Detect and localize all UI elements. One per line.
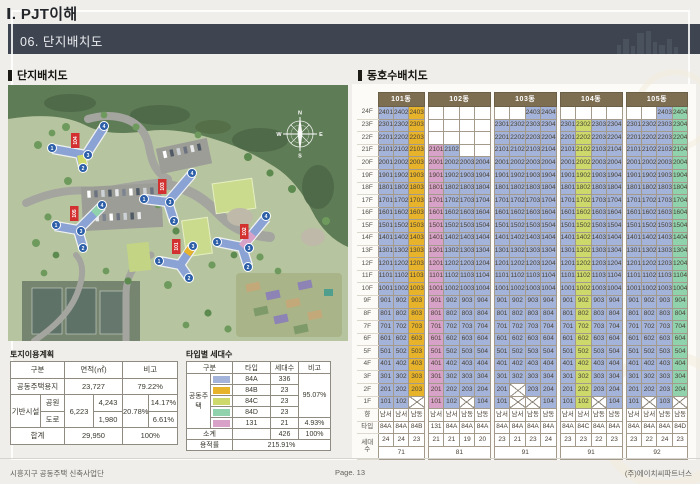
unit-cell: 2202 bbox=[642, 132, 657, 145]
col-header: 면적(㎡) bbox=[65, 362, 123, 379]
unit-cell: 704 bbox=[607, 321, 622, 334]
unit-cell: 804 bbox=[672, 308, 687, 321]
unit-layout-panel: 101동102동103동104동105동24F24012402240324032… bbox=[352, 84, 696, 460]
unit-cell: 401 bbox=[626, 358, 641, 371]
unit-cell: 1202 bbox=[444, 258, 459, 271]
type-swatch bbox=[211, 407, 233, 418]
direction-cell: 남서 bbox=[494, 409, 509, 422]
unit-cell: 2203 bbox=[591, 132, 606, 145]
unit-cell: 1001 bbox=[494, 283, 509, 296]
unit-cell: 201 bbox=[626, 384, 641, 397]
unit-cell: 1003 bbox=[525, 283, 540, 296]
unit-cell: 1503 bbox=[525, 220, 540, 233]
unit-cell: 1603 bbox=[409, 207, 424, 220]
section-title: 06. 단지배치도 bbox=[20, 31, 103, 50]
unit-cell: 804 bbox=[607, 308, 622, 321]
unit-cell: 701 bbox=[494, 321, 509, 334]
unit-cell: 1402 bbox=[393, 232, 408, 245]
floor-label: 18F bbox=[357, 182, 378, 195]
footer: 시흥지구 공동주택 신축사업단 Page. 13 (주)에이치씨파트너스 bbox=[0, 468, 700, 484]
table-cell: 1,980 bbox=[94, 411, 123, 428]
section-bullet bbox=[358, 70, 362, 81]
table-cell: 100% bbox=[123, 428, 178, 445]
unit-cell: 1001 bbox=[626, 283, 641, 296]
unit-cell: 101 bbox=[494, 396, 509, 409]
unit-cell: 1701 bbox=[378, 195, 393, 208]
unit-cell: 1604 bbox=[541, 207, 556, 220]
count-cell: 23 bbox=[607, 434, 622, 447]
unit-cell: 603 bbox=[657, 333, 672, 346]
count-cell: 23 bbox=[525, 434, 540, 447]
unit-cell: 401 bbox=[560, 358, 575, 371]
building-header: 104동 bbox=[560, 93, 622, 107]
unit-cell: 2204 bbox=[672, 132, 687, 145]
unit-cell: 302 bbox=[393, 371, 408, 384]
unit-cell: 1603 bbox=[525, 207, 540, 220]
unit-cell: 1803 bbox=[591, 182, 606, 195]
unit-cell: 2202 bbox=[576, 132, 591, 145]
unit-cell: 202 bbox=[444, 384, 459, 397]
unit-cell: 1601 bbox=[378, 207, 393, 220]
footer-divider bbox=[0, 458, 700, 459]
unit-cell: 1201 bbox=[428, 258, 443, 271]
unit-cell: 1204 bbox=[607, 258, 622, 271]
unit-cell: 1401 bbox=[560, 232, 575, 245]
unit-cell: 604 bbox=[541, 333, 556, 346]
unit-cell: 1503 bbox=[459, 220, 474, 233]
unit-cell: 201 bbox=[560, 384, 575, 397]
unit-cell: 2201 bbox=[626, 132, 641, 145]
unit-cell: 1904 bbox=[672, 169, 687, 182]
unit-cell: 2302 bbox=[393, 119, 408, 132]
unit-cell: 1304 bbox=[672, 245, 687, 258]
unit-cell: 404 bbox=[475, 358, 490, 371]
unit-cell: 1002 bbox=[393, 283, 408, 296]
unit-cell: 602 bbox=[576, 333, 591, 346]
direction-cell: 남서 bbox=[444, 409, 459, 422]
unit-cell: 1903 bbox=[409, 169, 424, 182]
svg-text:1: 1 bbox=[216, 240, 219, 246]
unit-cell: 1402 bbox=[510, 232, 525, 245]
direction-cell: 남서 bbox=[510, 409, 525, 422]
count-cell: 21 bbox=[444, 434, 459, 447]
table-cell: 23,727 bbox=[65, 378, 123, 395]
page-title: Ⅰ. PJT이해 bbox=[6, 3, 77, 24]
table-cell: 4,243 bbox=[94, 395, 123, 412]
unit-cell: 203 bbox=[525, 384, 540, 397]
empty-cell bbox=[576, 107, 591, 120]
col-header: 구분 bbox=[11, 362, 65, 379]
unit-cell: 1403 bbox=[525, 232, 540, 245]
unit-cell: 201 bbox=[494, 384, 509, 397]
unit-cell: 1104 bbox=[475, 270, 490, 283]
unit-cell: 1802 bbox=[510, 182, 525, 195]
unit-cell: 704 bbox=[475, 321, 490, 334]
unit-cell: 1203 bbox=[525, 258, 540, 271]
unit-cell: 2301 bbox=[560, 119, 575, 132]
unit-cell: 1702 bbox=[510, 195, 525, 208]
unit-cell: 1503 bbox=[591, 220, 606, 233]
svg-text:2: 2 bbox=[247, 265, 250, 271]
unit-cell: 1303 bbox=[591, 245, 606, 258]
building-header: 105동 bbox=[626, 93, 688, 107]
unit-cell: 2102 bbox=[393, 144, 408, 157]
unit-cell: 1301 bbox=[494, 245, 509, 258]
table-cell: 100% bbox=[299, 429, 331, 440]
unit-cell: 1704 bbox=[475, 195, 490, 208]
type-cell: 84A bbox=[541, 421, 556, 434]
unit-cell: 1202 bbox=[393, 258, 408, 271]
unit-cell: 802 bbox=[393, 308, 408, 321]
direction-cell: 남동 bbox=[459, 409, 474, 422]
unit-cell: 403 bbox=[657, 358, 672, 371]
unit-cell: 1201 bbox=[378, 258, 393, 271]
unit-cell: 2001 bbox=[428, 157, 443, 170]
unit-cell: 802 bbox=[444, 308, 459, 321]
unit-cell: 1003 bbox=[459, 283, 474, 296]
unit-cell: 1304 bbox=[475, 245, 490, 258]
unit-cell: 2001 bbox=[378, 157, 393, 170]
unit-cell: 301 bbox=[494, 371, 509, 384]
count-cell: 21 bbox=[428, 434, 443, 447]
unit-cell: 304 bbox=[475, 371, 490, 384]
type-swatch bbox=[211, 374, 233, 385]
unit-cell: 2202 bbox=[393, 132, 408, 145]
building-header: 101동 bbox=[378, 93, 424, 107]
unit-cell: 1002 bbox=[642, 283, 657, 296]
unit-cell: 503 bbox=[459, 346, 474, 359]
unit-cell: 403 bbox=[525, 358, 540, 371]
unit-cell: 601 bbox=[494, 333, 509, 346]
tag-102: 102 bbox=[242, 227, 248, 236]
unit-cell: 902 bbox=[393, 295, 408, 308]
unit-cell: 1702 bbox=[393, 195, 408, 208]
direction-cell: 남서 bbox=[576, 409, 591, 422]
unit-cell: 2304 bbox=[541, 119, 556, 132]
unit-cell: 1801 bbox=[626, 182, 641, 195]
unit-cell: 1502 bbox=[393, 220, 408, 233]
unit-cell: 804 bbox=[475, 308, 490, 321]
table-cell: 23 bbox=[271, 396, 299, 407]
unit-cell: 1902 bbox=[393, 169, 408, 182]
unit-cell: 1102 bbox=[444, 270, 459, 283]
unit-cell: 2003 bbox=[657, 157, 672, 170]
unit-cell: 1102 bbox=[642, 270, 657, 283]
unit-cell: 902 bbox=[576, 295, 591, 308]
table-cell: 84D bbox=[233, 407, 271, 418]
unit-cell: 2203 bbox=[657, 132, 672, 145]
floor-label: 5F bbox=[357, 346, 378, 359]
unit-cell: 1901 bbox=[626, 169, 641, 182]
unit-cell: 1804 bbox=[541, 182, 556, 195]
unit-cell: 1302 bbox=[510, 245, 525, 258]
table-cell: 215.91% bbox=[233, 440, 331, 451]
count-cell: 24 bbox=[378, 434, 393, 447]
unit-cell: 403 bbox=[591, 358, 606, 371]
unit-cell: 1703 bbox=[459, 195, 474, 208]
unit-cell: 1602 bbox=[510, 207, 525, 220]
unit-cell: 502 bbox=[576, 346, 591, 359]
empty-cell bbox=[475, 132, 490, 145]
unit-cell: 702 bbox=[510, 321, 525, 334]
empty-cell bbox=[459, 144, 474, 157]
table-cell: 공원 bbox=[41, 395, 65, 412]
unit-cell: 2002 bbox=[444, 157, 459, 170]
svg-text:2: 2 bbox=[173, 219, 176, 225]
unit-cell: 1802 bbox=[576, 182, 591, 195]
unit-cell: 702 bbox=[444, 321, 459, 334]
unit-cell: 1203 bbox=[459, 258, 474, 271]
footer-company-name: (주)에이치씨파트너스 bbox=[625, 468, 692, 479]
unit-cell: 1701 bbox=[626, 195, 641, 208]
playground bbox=[301, 228, 325, 246]
count-cell: 24 bbox=[657, 434, 672, 447]
unit-cell: 904 bbox=[541, 295, 556, 308]
unit-cell: 2403 bbox=[409, 107, 424, 120]
playground bbox=[227, 208, 253, 226]
unit-cell: 1604 bbox=[672, 207, 687, 220]
unit-cell: 1604 bbox=[607, 207, 622, 220]
unit-cell: 503 bbox=[657, 346, 672, 359]
col-header: 비고 bbox=[299, 362, 331, 374]
unit-cell: 2001 bbox=[560, 157, 575, 170]
unit-cell: 2302 bbox=[642, 119, 657, 132]
unit-cell: 402 bbox=[444, 358, 459, 371]
unit-cell: 1401 bbox=[378, 232, 393, 245]
count-cell: 23 bbox=[409, 434, 424, 447]
unit-cell: 503 bbox=[591, 346, 606, 359]
unit-cell: 104 bbox=[541, 396, 556, 409]
floor-label: 1F bbox=[357, 396, 378, 409]
unit-cell: 1402 bbox=[642, 232, 657, 245]
unit-cell: 1101 bbox=[494, 270, 509, 283]
floor-label: 17F bbox=[357, 195, 378, 208]
floor-label: 11F bbox=[357, 270, 378, 283]
unit-cell: 402 bbox=[393, 358, 408, 371]
table-cell: 소계 bbox=[187, 429, 233, 440]
table-cell: 도로 bbox=[41, 411, 65, 428]
row-label-direction: 향 bbox=[357, 409, 378, 422]
unit-cell: 2003 bbox=[459, 157, 474, 170]
unit-cell: 704 bbox=[541, 321, 556, 334]
floor-label: 7F bbox=[357, 321, 378, 334]
unit-cell: 1001 bbox=[428, 283, 443, 296]
sports-court bbox=[212, 178, 256, 213]
table-cell: 79.22% bbox=[123, 378, 178, 395]
unit-cell: 903 bbox=[657, 295, 672, 308]
svg-text:3: 3 bbox=[169, 200, 172, 206]
table-cell: 6,223 bbox=[65, 395, 94, 428]
unit-cell: 502 bbox=[510, 346, 525, 359]
unit-cell: 802 bbox=[642, 308, 657, 321]
direction-cell: 남동 bbox=[657, 409, 672, 422]
unit-cell: 1601 bbox=[560, 207, 575, 220]
unit-type-table: 구분 타입 세대수 비고 공동주택 84A 336 95.07% 84B 23 … bbox=[186, 361, 331, 451]
svg-text:3: 3 bbox=[87, 153, 90, 159]
unit-cell: 202 bbox=[393, 384, 408, 397]
table-cell: 공동주택 bbox=[187, 374, 211, 429]
unit-cell: 1601 bbox=[428, 207, 443, 220]
unit-cell: 1201 bbox=[560, 258, 575, 271]
unit-cell: 2303 bbox=[409, 119, 424, 132]
unit-cell: 703 bbox=[409, 321, 424, 334]
unit-cell: 2103 bbox=[409, 144, 424, 157]
svg-text:4: 4 bbox=[103, 124, 106, 130]
unit-cell: 1404 bbox=[672, 232, 687, 245]
unit-cell: 1004 bbox=[541, 283, 556, 296]
unit-cell: 1504 bbox=[607, 220, 622, 233]
empty-cell bbox=[626, 107, 641, 120]
unit-cell: 301 bbox=[560, 371, 575, 384]
unit-cell: 303 bbox=[409, 371, 424, 384]
type-cell: 84A bbox=[378, 421, 393, 434]
unit-cell: 1803 bbox=[409, 182, 424, 195]
unit-cell: 1401 bbox=[428, 232, 443, 245]
unit-cell: 501 bbox=[560, 346, 575, 359]
unit-cell: 2304 bbox=[672, 119, 687, 132]
unit-cell: 2201 bbox=[378, 132, 393, 145]
unit-cell: 1204 bbox=[541, 258, 556, 271]
unit-cell: 1201 bbox=[494, 258, 509, 271]
unit-cell: 1603 bbox=[459, 207, 474, 220]
unit-cell: 301 bbox=[428, 371, 443, 384]
unit-cell: 901 bbox=[560, 295, 575, 308]
empty-cell bbox=[444, 132, 459, 145]
unit-cell: 1503 bbox=[409, 220, 424, 233]
empty-cell bbox=[459, 132, 474, 145]
type-cell: 84A bbox=[444, 421, 459, 434]
unit-cell: 204 bbox=[541, 384, 556, 397]
floor-label: 6F bbox=[357, 333, 378, 346]
unit-cell: 1202 bbox=[576, 258, 591, 271]
unit-cell: 1902 bbox=[510, 169, 525, 182]
unit-cell: 601 bbox=[560, 333, 575, 346]
floor-label: 2F bbox=[357, 384, 378, 397]
unit-cell: 801 bbox=[428, 308, 443, 321]
type-cell: 131 bbox=[428, 421, 443, 434]
svg-text:4: 4 bbox=[191, 171, 194, 177]
unit-cell: 1002 bbox=[576, 283, 591, 296]
table-cell: 14.17% bbox=[149, 395, 178, 412]
table-cell: 기반시설 bbox=[11, 395, 41, 428]
count-cell: 24 bbox=[541, 434, 556, 447]
count-cell: 20 bbox=[475, 434, 490, 447]
unit-cell: 1502 bbox=[642, 220, 657, 233]
floor-label: 14F bbox=[357, 232, 378, 245]
unit-cell: 2104 bbox=[607, 144, 622, 157]
floor-label: 12F bbox=[357, 258, 378, 271]
unit-cell: 603 bbox=[525, 333, 540, 346]
svg-text:2: 2 bbox=[82, 166, 85, 172]
unit-cell: 904 bbox=[607, 295, 622, 308]
unit-cell: 1801 bbox=[378, 182, 393, 195]
unit-cell: 1303 bbox=[657, 245, 672, 258]
unit-cell: 504 bbox=[672, 346, 687, 359]
unit-cell: 2402 bbox=[393, 107, 408, 120]
unit-cell: 603 bbox=[591, 333, 606, 346]
unit-cell: 2303 bbox=[525, 119, 540, 132]
type-swatch bbox=[211, 418, 233, 429]
unit-cell: 1404 bbox=[475, 232, 490, 245]
excluded-unit-cell bbox=[591, 396, 606, 409]
table-cell: 23 bbox=[271, 407, 299, 418]
type-cell: 84C bbox=[576, 421, 591, 434]
empty-cell bbox=[510, 107, 525, 120]
unit-cell: 1004 bbox=[672, 283, 687, 296]
unit-cell: 1102 bbox=[576, 270, 591, 283]
unit-cell: 903 bbox=[525, 295, 540, 308]
unit-cell: 1503 bbox=[657, 220, 672, 233]
unit-cell: 1801 bbox=[428, 182, 443, 195]
unit-cell: 1101 bbox=[428, 270, 443, 283]
col-header: 비고 bbox=[123, 362, 178, 379]
type-cell: 84A bbox=[560, 421, 575, 434]
tag-103: 103 bbox=[160, 182, 166, 191]
unit-cell: 1301 bbox=[378, 245, 393, 258]
unit-cell: 502 bbox=[393, 346, 408, 359]
unit-cell: 903 bbox=[591, 295, 606, 308]
unit-cell: 1304 bbox=[607, 245, 622, 258]
unit-cell: 1903 bbox=[459, 169, 474, 182]
unit-cell: 304 bbox=[541, 371, 556, 384]
direction-cell: 남동 bbox=[409, 409, 424, 422]
table-cell: 426 bbox=[271, 429, 299, 440]
unit-cell: 203 bbox=[409, 384, 424, 397]
row-label-count: 세대 수 bbox=[357, 434, 378, 459]
unit-cell: 501 bbox=[428, 346, 443, 359]
unit-cell: 1302 bbox=[576, 245, 591, 258]
svg-text:2: 2 bbox=[82, 246, 85, 252]
count-cell: 23 bbox=[626, 434, 641, 447]
svg-text:4: 4 bbox=[265, 214, 268, 220]
unit-cell: 1002 bbox=[510, 283, 525, 296]
unit-cell: 1203 bbox=[591, 258, 606, 271]
unit-cell: 1602 bbox=[576, 207, 591, 220]
unit-cell: 1302 bbox=[444, 245, 459, 258]
unit-cell: 1703 bbox=[409, 195, 424, 208]
type-cell: 84A bbox=[657, 421, 672, 434]
unit-cell: 2004 bbox=[475, 157, 490, 170]
type-cell: 84A bbox=[393, 421, 408, 434]
unit-cell: 504 bbox=[541, 346, 556, 359]
floor-label: 22F bbox=[357, 132, 378, 145]
unit-cell: 604 bbox=[607, 333, 622, 346]
unit-cell: 903 bbox=[459, 295, 474, 308]
unit-cell: 1603 bbox=[591, 207, 606, 220]
unit-cell: 202 bbox=[576, 384, 591, 397]
unit-cell: 2004 bbox=[541, 157, 556, 170]
unit-cell: 403 bbox=[459, 358, 474, 371]
type-swatch bbox=[211, 385, 233, 396]
svg-text:N: N bbox=[298, 111, 302, 117]
unit-cell: 2404 bbox=[541, 107, 556, 120]
unit-cell: 2001 bbox=[626, 157, 641, 170]
excluded-unit-cell bbox=[409, 396, 424, 409]
unit-cell: 2301 bbox=[494, 119, 509, 132]
unit-cell: 104 bbox=[475, 396, 490, 409]
col-header: 타입 bbox=[233, 362, 271, 374]
floor-label: 21F bbox=[357, 144, 378, 157]
excluded-unit-cell bbox=[525, 396, 540, 409]
unit-cell: 1001 bbox=[560, 283, 575, 296]
unit-cell: 1401 bbox=[626, 232, 641, 245]
unit-cell: 1802 bbox=[444, 182, 459, 195]
count-cell: 23 bbox=[672, 434, 687, 447]
section-bar: 06. 단지배치도 bbox=[8, 24, 700, 54]
unit-cell: 803 bbox=[459, 308, 474, 321]
unit-cell: 102 bbox=[576, 396, 591, 409]
unit-cell: 202 bbox=[642, 384, 657, 397]
